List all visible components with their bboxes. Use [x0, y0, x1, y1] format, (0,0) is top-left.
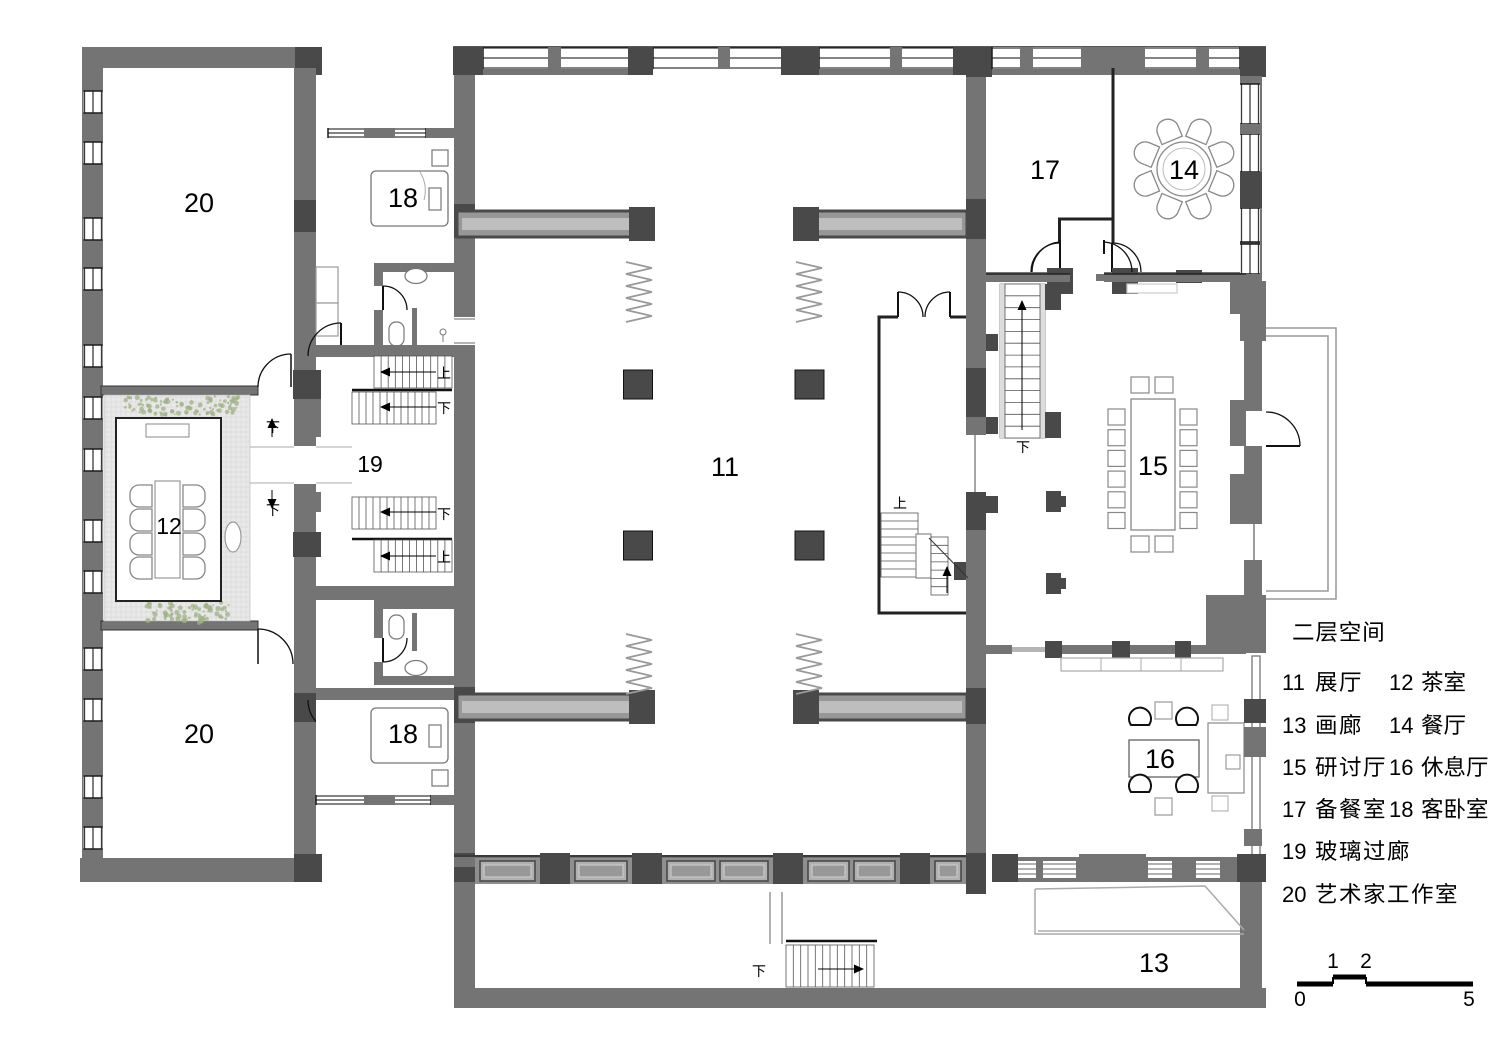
svg-text:14: 14	[1389, 713, 1413, 738]
svg-text:18: 18	[1389, 797, 1413, 822]
svg-text:12: 12	[156, 513, 182, 539]
svg-text:14: 14	[1169, 155, 1199, 185]
svg-text:13: 13	[1282, 713, 1306, 738]
svg-text:19: 19	[1282, 839, 1306, 864]
svg-text:16: 16	[1389, 755, 1413, 780]
svg-text:17: 17	[1282, 797, 1306, 822]
svg-text:20: 20	[184, 188, 214, 218]
svg-text:13: 13	[1139, 948, 1169, 978]
svg-text:19: 19	[357, 451, 383, 477]
svg-text:18: 18	[388, 719, 418, 749]
svg-text:12: 12	[1389, 670, 1413, 695]
svg-text:1: 1	[1327, 950, 1339, 973]
svg-text:18: 18	[388, 183, 418, 213]
svg-text:5: 5	[1463, 988, 1475, 1011]
svg-text:11: 11	[711, 452, 739, 482]
svg-text:0: 0	[1294, 988, 1306, 1011]
svg-text:15: 15	[1138, 451, 1168, 481]
svg-text:20: 20	[1282, 882, 1306, 907]
svg-text:17: 17	[1030, 155, 1060, 185]
svg-text:15: 15	[1282, 755, 1306, 780]
svg-text:16: 16	[1145, 744, 1175, 774]
svg-text:20: 20	[184, 719, 214, 749]
svg-text:2: 2	[1360, 950, 1372, 973]
svg-text:11: 11	[1282, 670, 1305, 695]
